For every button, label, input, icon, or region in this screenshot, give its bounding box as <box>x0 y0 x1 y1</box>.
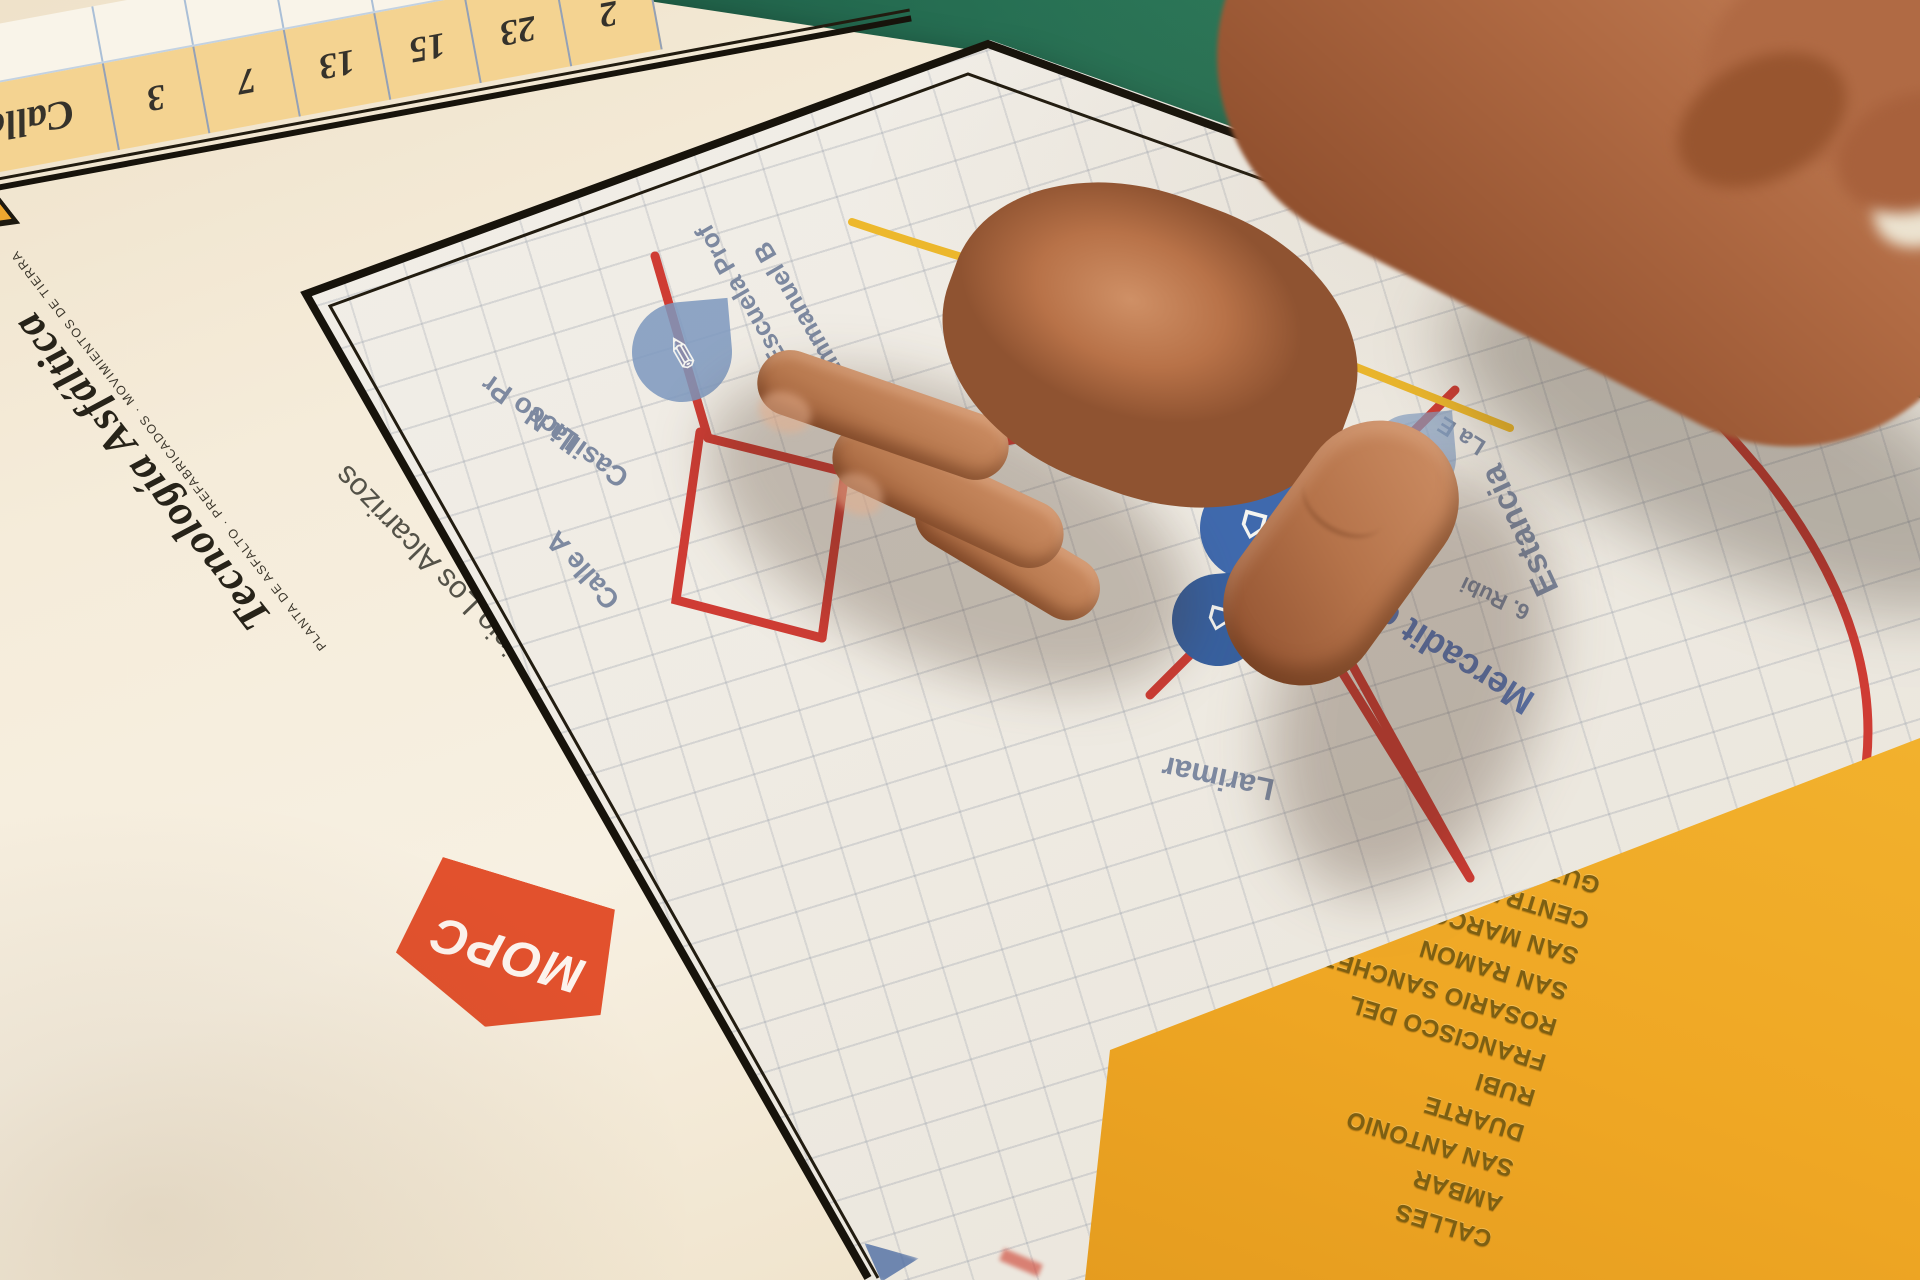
table-cell: 3 <box>104 46 210 149</box>
mopc-label: MOPC <box>423 904 591 1006</box>
table-cell: 13 <box>285 13 391 116</box>
table-cell: 7 <box>194 30 300 133</box>
table-cell: 15 <box>375 0 481 99</box>
photo-scene: Calles 3 7 13 15 23 2 Tecnología Asfálti… <box>0 0 1920 1280</box>
